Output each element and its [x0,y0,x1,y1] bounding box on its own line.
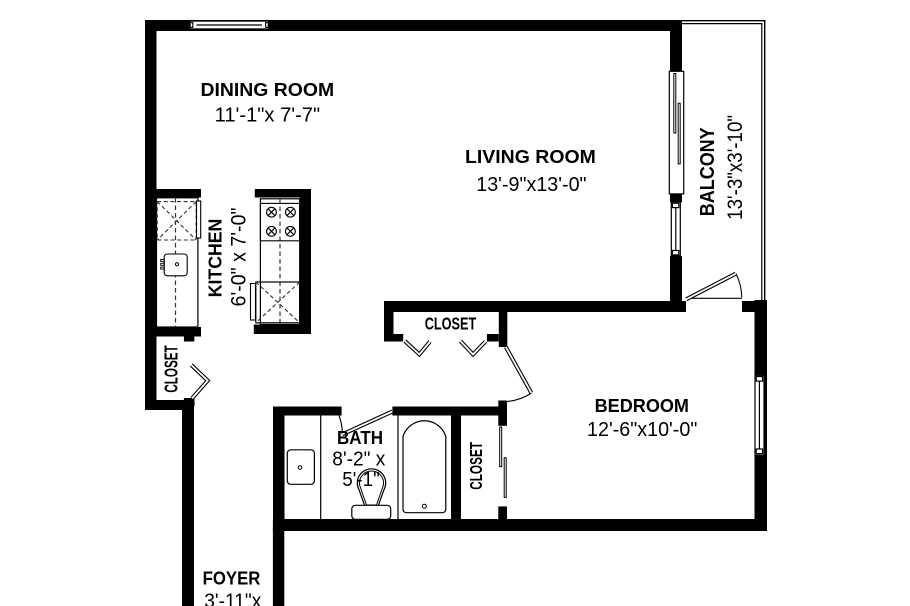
svg-text:6'-0" x 7'-0": 6'-0" x 7'-0" [226,208,250,307]
svg-text:11'-1"x 7'-7": 11'-1"x 7'-7" [215,105,321,127]
svg-text:3'-11"x: 3'-11"x [204,591,261,606]
svg-text:KITCHEN: KITCHEN [206,219,226,298]
svg-text:13'-9"x13'-0": 13'-9"x13'-0" [476,174,586,196]
svg-text:CLOSET: CLOSET [466,442,486,490]
svg-text:CLOSET: CLOSET [162,345,182,392]
svg-text:CLOSET: CLOSET [425,314,477,334]
svg-text:13'-3"x3'-10": 13'-3"x3'-10" [723,115,747,220]
svg-text:8'-2" x: 8'-2" x [332,449,385,471]
svg-text:BALCONY: BALCONY [697,127,719,216]
svg-text:12'-6"x10'-0": 12'-6"x10'-0" [587,419,697,441]
svg-text:DINING ROOM: DINING ROOM [201,80,335,100]
svg-text:BATH: BATH [337,428,383,448]
svg-text:FOYER: FOYER [203,569,261,589]
svg-text:5'-1": 5'-1" [342,469,380,491]
svg-text:LIVING ROOM: LIVING ROOM [465,147,596,167]
svg-text:BEDROOM: BEDROOM [595,396,689,416]
